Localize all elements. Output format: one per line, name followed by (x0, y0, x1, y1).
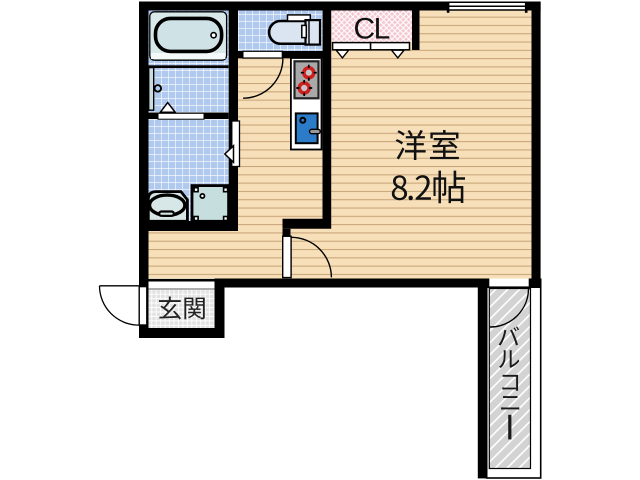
svg-text:CL: CL (354, 12, 390, 45)
